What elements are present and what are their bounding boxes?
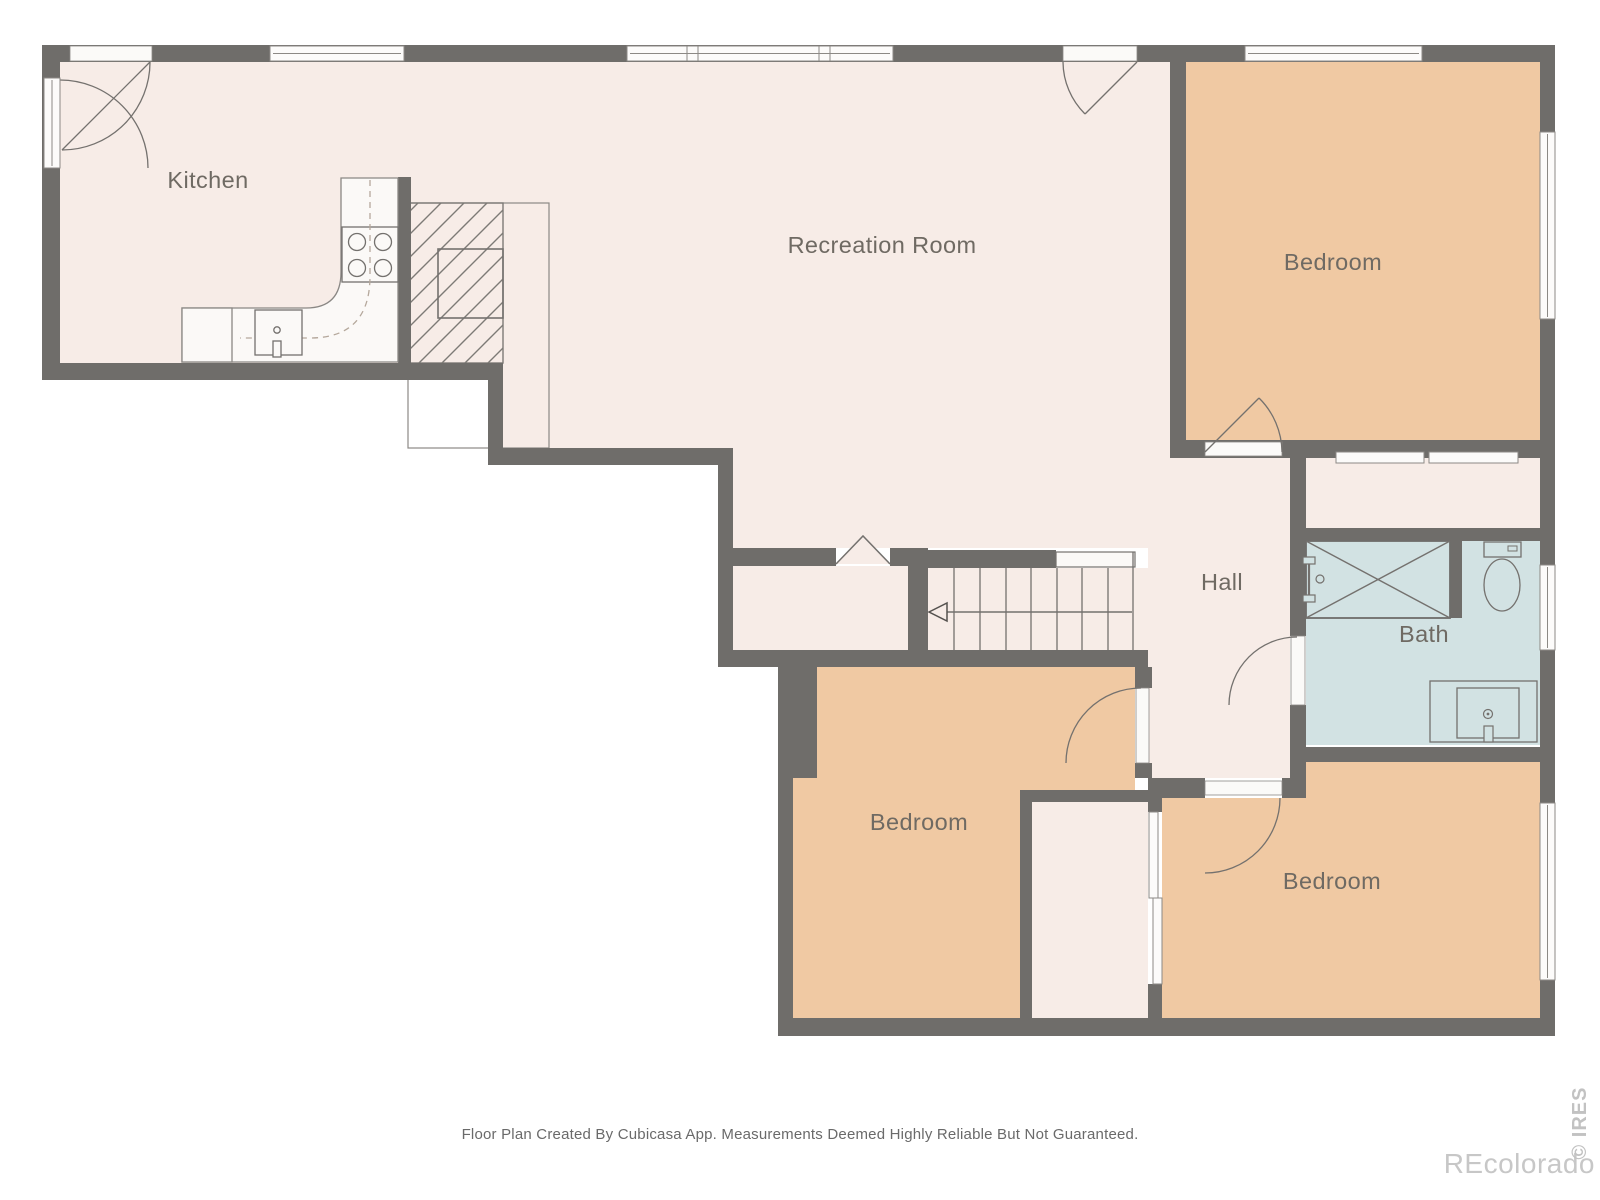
bedroom-closet-nook-floor xyxy=(1306,458,1540,528)
toilet-tank xyxy=(1484,542,1521,557)
wall-kitchen-counter-stub xyxy=(398,177,411,367)
wall-bedroom-notch xyxy=(793,667,817,778)
bedroom-bottom-middle-label: Bedroom xyxy=(870,809,968,835)
wall-bottom-section-left xyxy=(778,650,793,1036)
bath-door-leaf xyxy=(1291,636,1305,705)
closet-slider-bottom-panel xyxy=(1153,898,1162,984)
kitchen-cabinet xyxy=(182,308,232,362)
wall-nook-left-outer xyxy=(718,448,733,667)
bedroom1-closet-slider-left xyxy=(1336,452,1424,463)
wall-bedroom-hall-upper xyxy=(1135,667,1152,688)
bedroom1-closet-slider-right xyxy=(1429,452,1518,463)
wall-bath-top xyxy=(1290,528,1553,541)
recreation-room-label: Recreation Room xyxy=(788,232,977,258)
wall-bath-jog xyxy=(1290,747,1306,798)
closet-floor xyxy=(1032,802,1148,1018)
vanity-handle xyxy=(1484,726,1493,742)
vanity-faucet-dot xyxy=(1487,713,1490,716)
closet-slider-top-panel xyxy=(1149,812,1158,898)
stairs-floor xyxy=(928,568,1148,650)
wall-closet-left xyxy=(1020,790,1032,1036)
recreation-floor-mid xyxy=(503,363,1170,448)
wall-recreation-bottom xyxy=(488,448,733,465)
floor-plan-page: Kitchen Recreation Room Bedroom Hall Bat… xyxy=(0,0,1600,1200)
bedroom1-door-leaf xyxy=(1205,442,1282,456)
bedroom-top-right-label: Bedroom xyxy=(1284,249,1382,275)
bedroom-bottom-middle-floor-upper xyxy=(817,667,1135,778)
stair-nook-floor xyxy=(733,566,908,650)
wall-hall-bath-upper xyxy=(1290,458,1306,636)
shower-head-top xyxy=(1303,557,1315,564)
footer-disclaimer: Floor Plan Created By Cubicasa App. Meas… xyxy=(0,1126,1600,1143)
bedroom2-door-leaf xyxy=(1136,688,1149,763)
ires-watermark: © IRES xyxy=(1569,1063,1591,1183)
wall-nook-top-right xyxy=(890,548,908,566)
wall-bath-bottom xyxy=(1290,747,1553,762)
bedroom-bottom-right-floor-upper xyxy=(1306,762,1540,798)
wall-closet-top xyxy=(1020,790,1162,802)
hatched-region xyxy=(408,203,503,363)
shower-head-bottom xyxy=(1303,595,1315,602)
bedroom-bottom-right-label: Bedroom xyxy=(1283,868,1381,894)
hall-floor xyxy=(1148,458,1290,778)
recreation-floor-lower xyxy=(733,448,1170,548)
kitchen-label: Kitchen xyxy=(167,167,248,193)
wall-kitchen-bottom xyxy=(42,363,503,380)
wall-stairs-left xyxy=(908,548,928,667)
wall-bedroom-hall-lower xyxy=(1135,763,1152,778)
wall-hall-bath-lower xyxy=(1290,705,1306,747)
wall-nook-top-left xyxy=(733,548,836,566)
wall-closet-right-stub-top xyxy=(1148,798,1162,812)
wall-shower-stub xyxy=(1450,534,1462,618)
kitchen-door-opening xyxy=(70,46,152,61)
bedroom-bottom-right-floor xyxy=(1162,798,1540,1018)
wall-bottom-outer xyxy=(778,1018,1553,1036)
sink-handle xyxy=(273,341,281,357)
wall-stairs-top xyxy=(928,550,1056,568)
bedroom3-door-leaf xyxy=(1205,781,1282,795)
wall-bedroom1-left xyxy=(1170,45,1186,458)
floor-plan-drawing: Kitchen Recreation Room Bedroom Hall Bat… xyxy=(0,0,1600,1200)
hall-label: Hall xyxy=(1201,569,1243,595)
stairs-railing xyxy=(1056,552,1135,567)
recreation-door-opening xyxy=(1063,46,1137,61)
bath-label: Bath xyxy=(1399,621,1449,647)
